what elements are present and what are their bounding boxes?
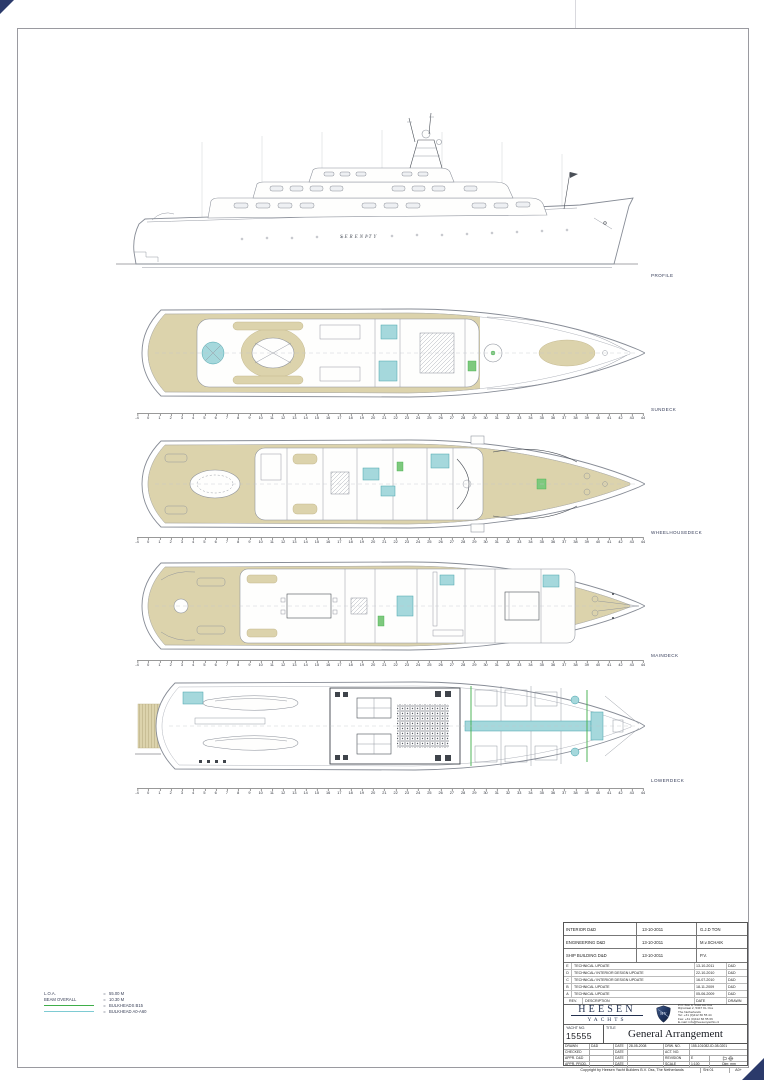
- frame-tick: 1: [158, 663, 160, 667]
- frame-tick: 34: [528, 416, 532, 420]
- frame-tick: 24: [416, 540, 420, 544]
- frame-tick: 30: [483, 540, 487, 544]
- revision-row: A TECHNICAL UPDATE 05-06-2009 D&D: [564, 991, 747, 998]
- frame-tick: 16: [326, 791, 330, 795]
- frame-tick: 14: [304, 663, 308, 667]
- frame-tick: 22: [393, 791, 397, 795]
- frame-tick: 4: [192, 791, 194, 795]
- frame-tick: 44: [641, 416, 645, 420]
- revision-row: D TECHNICAL/ INTERIOR DESIGN UPDATE 22-1…: [564, 970, 747, 977]
- frame-tick: 19: [360, 416, 364, 420]
- revision-row: C TECHNICAL/ INTERIOR DESIGN UPDATE 16-0…: [564, 977, 747, 984]
- deck-plan-sundeck: [135, 300, 645, 406]
- heesen-shield-icon: HY: [650, 1005, 676, 1023]
- frame-tick: 4: [192, 540, 194, 544]
- frame-tick: 9: [248, 663, 250, 667]
- frame-tick: 15: [315, 416, 319, 420]
- frame-tick: 3: [181, 791, 183, 795]
- cyan-line-swatch: [44, 1011, 94, 1012]
- waterline: [116, 264, 638, 268]
- frame-tick: 44: [641, 791, 645, 795]
- frame-tick: 13: [292, 540, 296, 544]
- frame-tick: 7: [226, 416, 228, 420]
- frame-tick: 35: [540, 540, 544, 544]
- copyright-text: Copyright by Heesen Yacht Builders B.V. …: [564, 1068, 700, 1074]
- frame-tick: 17: [337, 791, 341, 795]
- frame-tick: 18: [349, 663, 353, 667]
- dimension-unit: Dim: mm: [710, 1062, 747, 1067]
- frame-tick: 10: [259, 663, 263, 667]
- green-line-swatch: [44, 1005, 94, 1006]
- frame-tick: 8: [237, 416, 239, 420]
- frame-tick: 7: [226, 663, 228, 667]
- frame-tick: 29: [472, 540, 476, 544]
- frame-ruler: -401234567891011121314151617181920212223…: [137, 413, 643, 422]
- frame-tick: 21: [382, 540, 386, 544]
- frame-tick: 7: [226, 791, 228, 795]
- frame-tick: 6: [215, 663, 217, 667]
- frame-tick: 11: [270, 663, 274, 667]
- frame-tick: 22: [393, 416, 397, 420]
- frame-tick: 38: [573, 540, 577, 544]
- scale-value: 1:100: [690, 1062, 710, 1067]
- frame-tick: 1: [158, 540, 160, 544]
- frame-tick: 28: [461, 791, 465, 795]
- frame-tick: 18: [349, 540, 353, 544]
- drawing-sheet: SERENITY PROFILE: [0, 0, 764, 1080]
- legend-value: 55.00 M: [109, 991, 124, 996]
- frame-tick: 9: [248, 416, 250, 420]
- profile-label: PROFILE: [651, 273, 673, 278]
- frame-tick: 11: [270, 416, 274, 420]
- frame-tick: 42: [618, 663, 622, 667]
- frame-tick: 39: [585, 416, 589, 420]
- frame-tick: 25: [427, 791, 431, 795]
- frame-tick: 10: [259, 416, 263, 420]
- frame-tick: 16: [326, 540, 330, 544]
- info-row-shipbuilding: SHIP BUILDING D&D 13-10-2011 P.V.: [564, 949, 747, 962]
- frame-tick: 13: [292, 791, 296, 795]
- frame-tick: 18: [349, 791, 353, 795]
- profile-drawing: SERENITY: [112, 102, 642, 282]
- company-band: HEESEN YACHTS HY P.O. Box 8, 5340: [564, 1005, 747, 1025]
- frame-ruler: -401234567891011121314151617181920212223…: [137, 537, 643, 546]
- frame-tick: 17: [337, 416, 341, 420]
- frame-tick: 12: [281, 416, 285, 420]
- frame-tick: 39: [585, 540, 589, 544]
- legend-value: 10.30 M: [109, 997, 124, 1002]
- legend: L.O.A. = 55.00 M BEAM OVERALL = 10.30 M …: [44, 991, 194, 1014]
- frame-tick: 32: [506, 663, 510, 667]
- frame-tick: 23: [405, 663, 409, 667]
- frame-tick: 5: [203, 663, 205, 667]
- frame-tick: 5: [203, 540, 205, 544]
- frame-tick: 16: [326, 416, 330, 420]
- drawing-title-cell: TITLE General Arrangement: [604, 1025, 747, 1043]
- frame-tick: -4: [135, 791, 138, 795]
- frame-tick: 15: [315, 540, 319, 544]
- frame-tick: 20: [371, 540, 375, 544]
- frame-tick: 26: [438, 791, 442, 795]
- frame-tick: 43: [630, 540, 634, 544]
- frame-tick: 30: [483, 663, 487, 667]
- frame-tick: 22: [393, 663, 397, 667]
- frame-tick: 12: [281, 540, 285, 544]
- frame-tick: 11: [270, 540, 274, 544]
- frame-tick: 0: [147, 540, 149, 544]
- frame-tick: 15: [315, 663, 319, 667]
- revision-row: E TECHNICAL UPDATE 13-10-2011 D&D: [564, 963, 747, 970]
- frame-tick: 37: [562, 663, 566, 667]
- maindeck-label: MAINDECK: [651, 653, 678, 658]
- frame-tick: 0: [147, 416, 149, 420]
- frame-tick: 35: [540, 663, 544, 667]
- heesen-logo: HEESEN YACHTS: [564, 1005, 650, 1023]
- frame-tick: 23: [405, 540, 409, 544]
- legend-label: L.O.A.: [44, 991, 100, 996]
- frame-tick: 19: [360, 791, 364, 795]
- frame-tick: 10: [259, 791, 263, 795]
- frame-tick: 41: [607, 416, 611, 420]
- frame-tick: 23: [405, 791, 409, 795]
- frame-tick: 28: [461, 663, 465, 667]
- frame-tick: 0: [147, 791, 149, 795]
- frame-tick: 32: [506, 791, 510, 795]
- frame-tick: 8: [237, 791, 239, 795]
- frame-tick: 38: [573, 416, 577, 420]
- frame-tick: 25: [427, 540, 431, 544]
- frame-tick: 31: [495, 540, 499, 544]
- frame-tick: 4: [192, 663, 194, 667]
- frame-tick: 34: [528, 540, 532, 544]
- frame-tick: 23: [405, 416, 409, 420]
- drawing-title: General Arrangement: [628, 1028, 723, 1040]
- frame-tick: 21: [382, 791, 386, 795]
- frame-tick: 36: [551, 416, 555, 420]
- frame-tick: 41: [607, 540, 611, 544]
- frame-tick: 12: [281, 791, 285, 795]
- frame-tick: 44: [641, 540, 645, 544]
- frame-tick: 20: [371, 663, 375, 667]
- frame-tick: 31: [495, 791, 499, 795]
- fold-mark: [575, 0, 576, 28]
- frame-tick: 2: [170, 791, 172, 795]
- frame-tick: 6: [215, 416, 217, 420]
- yacht-number-cell: YACHT NO. 15555: [564, 1025, 604, 1043]
- frame-tick: 27: [450, 663, 454, 667]
- lowerdeck-label: LOWERDECK: [651, 778, 684, 783]
- frame-tick: 35: [540, 416, 544, 420]
- frame-tick: 36: [551, 540, 555, 544]
- frame-tick: 26: [438, 663, 442, 667]
- frame-tick: 2: [170, 540, 172, 544]
- frame-tick: 43: [630, 416, 634, 420]
- radar-mast: [407, 113, 442, 168]
- corner-mark-top-left: [0, 0, 14, 14]
- frame-tick: 30: [483, 791, 487, 795]
- frame-tick: 0: [147, 663, 149, 667]
- frame-tick: 36: [551, 663, 555, 667]
- frame-tick: -4: [135, 663, 138, 667]
- frame-tick: 7: [226, 540, 228, 544]
- frame-tick: -4: [135, 416, 138, 420]
- frame-tick: 44: [641, 663, 645, 667]
- frame-tick: 14: [304, 416, 308, 420]
- frame-tick: 43: [630, 791, 634, 795]
- frame-tick: 34: [528, 791, 532, 795]
- frame-tick: 19: [360, 540, 364, 544]
- projection-symbol-icon: [710, 1056, 747, 1061]
- frame-tick: 34: [528, 663, 532, 667]
- frame-tick: 29: [472, 663, 476, 667]
- yacht-number: 15555: [566, 1031, 603, 1041]
- frame-tick: 3: [181, 540, 183, 544]
- frame-tick: 42: [618, 416, 622, 420]
- frame-tick: 3: [181, 416, 183, 420]
- frame-tick: 33: [517, 416, 521, 420]
- frame-tick: 37: [562, 416, 566, 420]
- frame-tick: 14: [304, 791, 308, 795]
- frame-tick: 19: [360, 663, 364, 667]
- frame-tick: 22: [393, 540, 397, 544]
- frame-tick: 25: [427, 416, 431, 420]
- frame-tick: 24: [416, 791, 420, 795]
- frame-tick: 4: [192, 416, 194, 420]
- frame-ruler: -401234567891011121314151617181920212223…: [137, 660, 643, 669]
- legend-row-bulkhead-a0a60: = BULKHEAD A0-A60: [44, 1008, 194, 1014]
- frame-tick: 33: [517, 540, 521, 544]
- frame-tick: 6: [215, 540, 217, 544]
- frame-tick: 40: [596, 540, 600, 544]
- frame-tick: 2: [170, 416, 172, 420]
- sheet-number: Sht 01: [700, 1068, 729, 1074]
- frame-tick: 6: [215, 791, 217, 795]
- frame-tick: 40: [596, 663, 600, 667]
- drawing-number: 155-101082-ID-08-0201: [690, 1044, 747, 1049]
- frame-tick: 33: [517, 791, 521, 795]
- title-block: INTERIOR D&D 13-10-2011 G.J.D TON ENGINE…: [563, 922, 748, 1066]
- frame-tick: -4: [135, 540, 138, 544]
- legend-value: BULKHEAD A0-A60: [109, 1009, 146, 1014]
- copyright-row: Copyright by Heesen Yacht Builders B.V. …: [564, 1068, 747, 1074]
- frame-tick: 40: [596, 416, 600, 420]
- info-row-engineering: ENGINEERING D&D 13-10-2011 M.v.SCHAIK: [564, 936, 747, 949]
- frame-tick: 9: [248, 791, 250, 795]
- frame-tick: 37: [562, 540, 566, 544]
- frame-tick: 39: [585, 663, 589, 667]
- frame-tick: 10: [259, 540, 263, 544]
- frame-tick: 28: [461, 540, 465, 544]
- frame-tick: 27: [450, 791, 454, 795]
- profile-view: SERENITY: [112, 102, 642, 282]
- deck-plan-lowerdeck: [135, 670, 645, 782]
- hull-name-text: SERENITY: [340, 235, 378, 240]
- revision-row: B TECHNICAL UPDATE 18-11-2009 D&D: [564, 984, 747, 991]
- frame-tick: 29: [472, 416, 476, 420]
- frame-tick: 25: [427, 663, 431, 667]
- frame-tick: 26: [438, 540, 442, 544]
- frame-tick: 15: [315, 791, 319, 795]
- sundeck-label: SUNDECK: [651, 407, 676, 412]
- frame-tick: 42: [618, 540, 622, 544]
- frame-tick: 13: [292, 663, 296, 667]
- frame-tick: 17: [337, 540, 341, 544]
- frame-tick: 8: [237, 663, 239, 667]
- wheelhousedeck-label: WHEELHOUSEDECK: [651, 530, 702, 535]
- frame-tick: 11: [270, 791, 274, 795]
- frame-tick: 43: [630, 663, 634, 667]
- frame-tick: 37: [562, 791, 566, 795]
- frame-tick: 20: [371, 791, 375, 795]
- info-row-interior: INTERIOR D&D 13-10-2011 G.J.D TON: [564, 923, 747, 936]
- legend-value: BULKHEADS B15: [109, 1003, 143, 1008]
- frame-tick: 2: [170, 663, 172, 667]
- frame-tick: 9: [248, 540, 250, 544]
- frame-tick: 26: [438, 416, 442, 420]
- frame-tick: 3: [181, 663, 183, 667]
- frame-tick: 12: [281, 663, 285, 667]
- frame-tick: 27: [450, 416, 454, 420]
- svg-text:HY: HY: [660, 1011, 667, 1016]
- frame-tick: 40: [596, 791, 600, 795]
- bow-antenna: [564, 172, 578, 209]
- frame-tick: 1: [158, 416, 160, 420]
- frame-tick: 20: [371, 416, 375, 420]
- frame-tick: 5: [203, 416, 205, 420]
- deck-plan-wheelhousedeck: [135, 434, 645, 534]
- frame-tick: 38: [573, 791, 577, 795]
- frame-tick: 27: [450, 540, 454, 544]
- frame-tick: 38: [573, 663, 577, 667]
- frame-tick: 24: [416, 416, 420, 420]
- frame-tick: 16: [326, 663, 330, 667]
- frame-tick: 13: [292, 416, 296, 420]
- deck-plan-maindeck: [135, 556, 645, 656]
- frame-tick: 8: [237, 540, 239, 544]
- frame-ruler: -401234567891011121314151617181920212223…: [137, 788, 643, 797]
- frame-tick: 41: [607, 791, 611, 795]
- frame-tick: 28: [461, 416, 465, 420]
- frame-tick: 39: [585, 791, 589, 795]
- frame-tick: 14: [304, 540, 308, 544]
- sheet-size: A0+: [729, 1068, 747, 1074]
- frame-tick: 30: [483, 416, 487, 420]
- frame-tick: 31: [495, 663, 499, 667]
- frame-tick: 21: [382, 416, 386, 420]
- frame-tick: 21: [382, 663, 386, 667]
- frame-tick: 5: [203, 791, 205, 795]
- frame-tick: 32: [506, 540, 510, 544]
- frame-tick: 33: [517, 663, 521, 667]
- frame-tick: 41: [607, 663, 611, 667]
- frame-tick: 42: [618, 791, 622, 795]
- frame-tick: 31: [495, 416, 499, 420]
- yacht-title-band: YACHT NO. 15555 TITLE General Arrangemen…: [564, 1025, 747, 1044]
- frame-tick: 17: [337, 663, 341, 667]
- frame-tick: 1: [158, 791, 160, 795]
- frame-tick: 36: [551, 791, 555, 795]
- legend-label: BEAM OVERALL: [44, 997, 100, 1002]
- frame-tick: 29: [472, 791, 476, 795]
- frame-tick: 18: [349, 416, 353, 420]
- revision-letter: E: [690, 1056, 710, 1061]
- frame-tick: 24: [416, 663, 420, 667]
- company-address: P.O. Box 8, 5340 AA Oss Rijnstraat 2, 53…: [676, 1003, 747, 1026]
- frame-tick: 35: [540, 791, 544, 795]
- frame-tick: 32: [506, 416, 510, 420]
